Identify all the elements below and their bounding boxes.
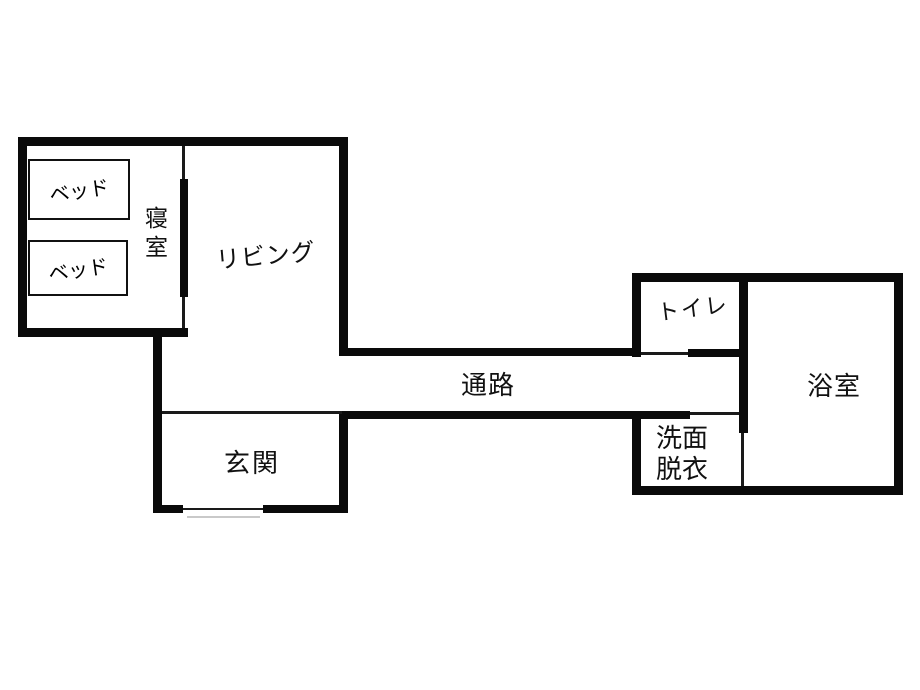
wall-bathroom-west bbox=[739, 273, 748, 433]
wall-corridor-top bbox=[339, 348, 641, 356]
room-label-living: リビング bbox=[215, 239, 317, 275]
door-washroom bbox=[690, 412, 740, 415]
bed-1: ベッド bbox=[28, 159, 130, 220]
room-label-bathroom: 浴室 bbox=[807, 372, 861, 402]
wall-rightblock-top bbox=[632, 273, 903, 282]
wall-bedroom-bottom bbox=[18, 328, 188, 337]
bed-1-label: ベッド bbox=[47, 171, 110, 208]
boundary-entrance-top bbox=[162, 411, 342, 414]
sliding-door-bedroom bbox=[180, 179, 188, 297]
wall-entrance-bottom-left bbox=[153, 505, 183, 513]
room-label-entrance: 玄関 bbox=[224, 449, 280, 479]
wall-rightblock-right bbox=[894, 273, 903, 495]
wall-entrance-east bbox=[339, 412, 348, 513]
room-label-washroom: 洗面 脱衣 bbox=[656, 423, 708, 485]
wall-toilet-left bbox=[632, 273, 641, 357]
door-entrance bbox=[183, 508, 263, 510]
door-toilet bbox=[641, 352, 688, 355]
entrance-step-line bbox=[187, 516, 260, 518]
wall-washroom-left bbox=[632, 411, 641, 495]
wall-top-main bbox=[18, 137, 347, 146]
bed-2-label: ベッド bbox=[46, 249, 109, 286]
door-bathroom bbox=[741, 433, 744, 490]
wall-toilet-bottom bbox=[688, 349, 741, 357]
wall-rightblock-bottom bbox=[632, 486, 903, 495]
wall-left-outer bbox=[18, 137, 27, 337]
wall-entrance-west bbox=[153, 334, 162, 513]
wall-living-right bbox=[339, 137, 348, 356]
floor-plan: ベッド ベッド 寝室 リビング 通路 玄関 トイレ 浴室 洗面 脱衣 bbox=[0, 0, 920, 690]
room-label-bedroom: 寝室 bbox=[141, 206, 167, 264]
wall-entrance-bottom-right bbox=[263, 505, 348, 513]
room-label-toilet: トイレ bbox=[656, 292, 731, 326]
bed-2: ベッド bbox=[28, 240, 128, 296]
room-label-corridor: 通路 bbox=[461, 371, 515, 401]
